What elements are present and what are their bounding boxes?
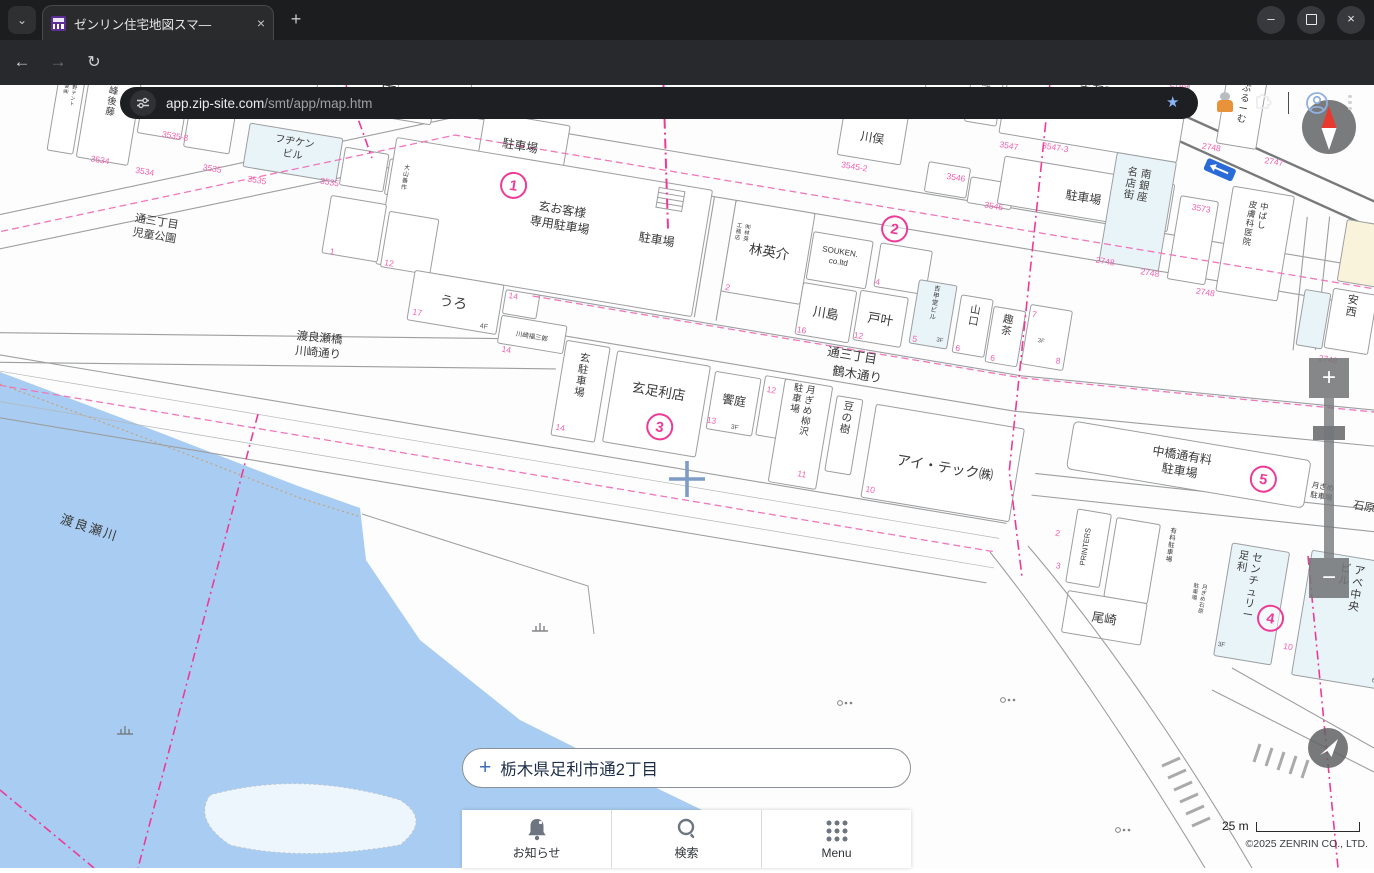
- scale-bar: [1256, 822, 1360, 832]
- svg-text:17: 17: [412, 307, 423, 318]
- svg-text:3F: 3F: [1037, 338, 1045, 345]
- zoom-slider-handle[interactable]: [1313, 426, 1345, 440]
- extensions-puzzle-icon[interactable]: [1253, 91, 1273, 116]
- reload-button[interactable]: ↻: [82, 52, 106, 72]
- back-button[interactable]: ←: [10, 52, 34, 72]
- new-tab-button[interactable]: +: [284, 9, 308, 30]
- svg-text:12: 12: [766, 384, 777, 395]
- tab-title: ゼンリン住宅地図スマ—: [74, 14, 251, 33]
- svg-text:3F: 3F: [730, 424, 739, 432]
- svg-text:4F: 4F: [479, 323, 488, 331]
- active-tab[interactable]: ゼンリン住宅地図スマ— ×: [42, 5, 274, 40]
- add-location-icon[interactable]: +: [479, 756, 491, 780]
- toolbar-separator: [1288, 92, 1289, 114]
- map-area[interactable]: 三田峰後藤水野テント商会㈱フヂケンビル大山善作通三丁目児童公園イシイ3F駐車場玄…: [0, 0, 1374, 868]
- search-icon: [674, 817, 700, 841]
- tab-close-icon[interactable]: ×: [257, 15, 265, 31]
- browser-titlebar: ⌄ ゼンリン住宅地図スマ— × + – ×: [0, 0, 1374, 40]
- menu-grid-icon: [824, 819, 850, 843]
- window-restore-button[interactable]: [1297, 6, 1325, 34]
- svg-text:3F: 3F: [936, 337, 944, 344]
- zoom-slider-track[interactable]: [1324, 398, 1334, 558]
- bottom-toolbar: お知らせ 検索 Menu: [462, 810, 911, 868]
- svg-text:14: 14: [555, 422, 566, 433]
- copyright-notice: ©2025 ZENRIN CO., LTD.: [1150, 838, 1368, 850]
- browser-menu-icon[interactable]: [1348, 92, 1352, 113]
- stairs-icon: [656, 187, 685, 211]
- svg-text:13: 13: [706, 415, 717, 426]
- browser-toolbar: ← → ↻ app.zip-site.com/smt/app/map.htm ★: [0, 40, 1374, 85]
- menu-label: Menu: [821, 846, 851, 860]
- svg-text:12: 12: [853, 330, 864, 341]
- site-favicon-icon: [51, 16, 66, 31]
- url-path: /smt/app/map.htm: [264, 96, 372, 111]
- search-label: 検索: [674, 844, 698, 861]
- notice-label: お知らせ: [513, 844, 561, 861]
- search-button[interactable]: 検索: [612, 810, 762, 868]
- site-settings-icon[interactable]: [130, 90, 156, 116]
- window-minimize-button[interactable]: –: [1257, 6, 1285, 34]
- svg-text:14: 14: [508, 290, 519, 301]
- menu-button[interactable]: Menu: [762, 810, 911, 868]
- svg-text:14: 14: [501, 344, 512, 355]
- svg-text:3F: 3F: [1217, 641, 1226, 649]
- notice-button[interactable]: お知らせ: [462, 810, 612, 868]
- window-close-button[interactable]: ×: [1337, 6, 1365, 34]
- svg-text:10: 10: [865, 484, 876, 495]
- map-canvas[interactable]: 三田峰後藤水野テント商会㈱フヂケンビル大山善作通三丁目児童公園イシイ3F駐車場玄…: [0, 0, 1374, 868]
- tab-search-button[interactable]: ⌄: [8, 6, 36, 34]
- scale-label: 25 m: [1222, 819, 1249, 833]
- svg-text:10: 10: [1283, 641, 1294, 652]
- profile-avatar-icon[interactable]: [1304, 90, 1330, 121]
- address-bar[interactable]: app.zip-site.com/smt/app/map.htm: [120, 87, 1198, 119]
- svg-text:16: 16: [796, 324, 807, 335]
- svg-text:12: 12: [384, 257, 395, 268]
- zoom-out-button[interactable]: −: [1309, 558, 1349, 598]
- url-text[interactable]: app.zip-site.com/smt/app/map.htm: [166, 96, 372, 111]
- zoom-in-button[interactable]: +: [1309, 358, 1349, 398]
- current-location-button[interactable]: [1306, 726, 1350, 775]
- extension-avatar-icon[interactable]: [1215, 92, 1235, 112]
- forward-button[interactable]: →: [46, 52, 70, 72]
- map-search-box[interactable]: + 栃木県足利市通2丁目: [462, 748, 911, 788]
- bookmark-star-icon[interactable]: ★: [1166, 93, 1179, 111]
- url-domain: app.zip-site.com: [166, 96, 264, 111]
- bell-icon: [524, 817, 550, 841]
- current-address: 栃木県足利市通2丁目: [500, 756, 658, 780]
